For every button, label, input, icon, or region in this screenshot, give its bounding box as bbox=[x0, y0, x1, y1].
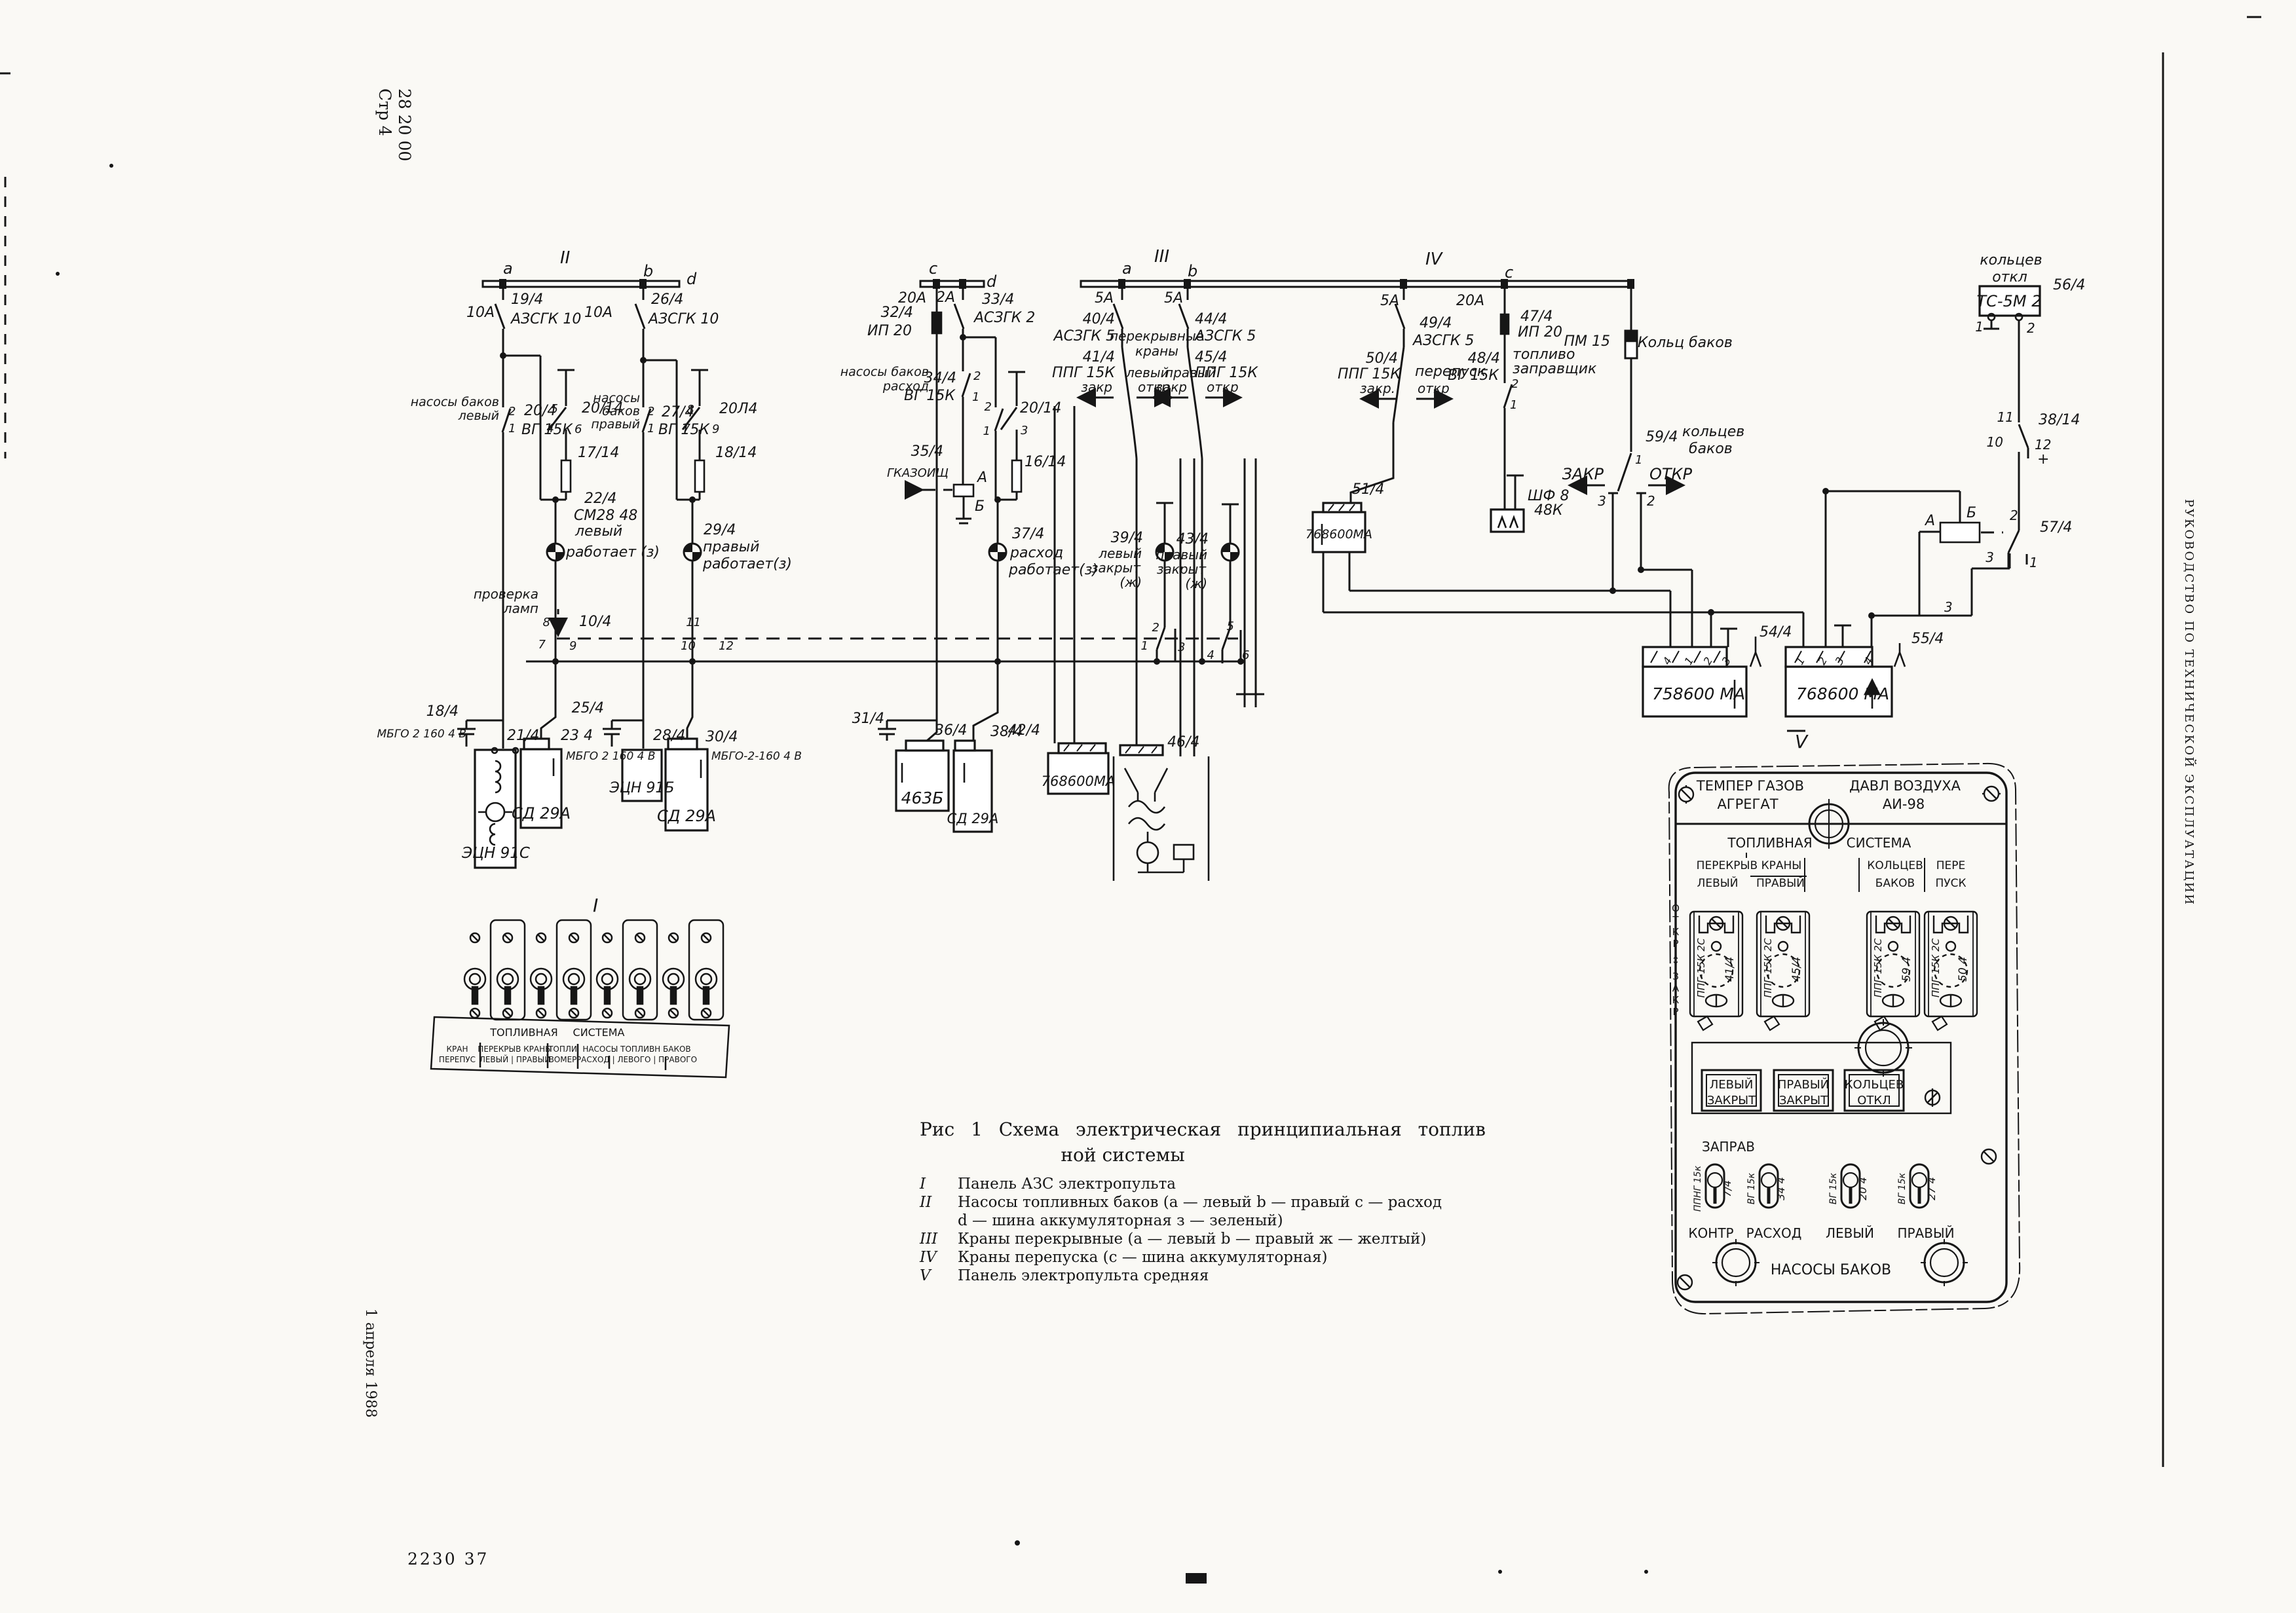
fuse-ip20-32-4 bbox=[932, 312, 941, 333]
resistor-17-14 bbox=[561, 460, 571, 492]
schematic-label: (ж) bbox=[1120, 574, 1142, 590]
schematic-label: IV bbox=[1425, 250, 1444, 269]
schematic-label: 1 bbox=[1510, 398, 1517, 412]
schematic-label: 10 bbox=[1987, 434, 2003, 450]
schematic-label: 54/4 bbox=[1760, 624, 1792, 640]
schematic-label: ТОПЛИВНАЯ bbox=[489, 1026, 557, 1039]
schematic-label: ОТКЛ bbox=[1857, 1094, 1891, 1107]
relay-35-4 bbox=[954, 485, 973, 496]
schematic-label: 4 bbox=[547, 422, 554, 436]
schematic-label: 5 bbox=[1227, 620, 1234, 633]
schematic-label: 10А bbox=[466, 305, 495, 321]
schematic-label: 38/14 bbox=[2039, 412, 2080, 428]
power-buses bbox=[483, 281, 1633, 287]
schematic-label: 7 bbox=[683, 422, 691, 436]
schematic-label: 50/4 bbox=[1366, 350, 1398, 367]
schematic-label: левый bbox=[574, 523, 622, 540]
schematic-label: 48/4 bbox=[1468, 350, 1500, 367]
schematic-label: ТС-5М 2 bbox=[1977, 292, 2042, 310]
schematic-label: левый bbox=[1098, 546, 1142, 561]
schematic-label: закр. bbox=[1360, 380, 1395, 396]
schematic-label: 10А bbox=[584, 305, 612, 321]
schematic-label: насосы bbox=[593, 391, 640, 405]
schematic-label: + bbox=[2037, 451, 2049, 468]
schematic-label: 20Л4 bbox=[719, 401, 758, 417]
schematic-label: 2 bbox=[973, 369, 981, 383]
schematic-label: 2 bbox=[2027, 320, 2035, 336]
schematic-label: ППГ 15К 2С bbox=[1872, 938, 1884, 997]
schematic-label: 27 4 bbox=[1925, 1177, 1938, 1200]
schematic-label: закрыт bbox=[1091, 560, 1141, 576]
schematic-label: проверка bbox=[474, 586, 538, 602]
schematic-label: МБГО-2-160 4 В bbox=[711, 750, 802, 763]
schematic-label: МБГО 2 160 4 В bbox=[566, 750, 656, 763]
schematic-label: ТОПЛИ bbox=[548, 1045, 577, 1054]
schematic-label: ППНГ 15к bbox=[1693, 1165, 1703, 1212]
schematic-label: 17/14 bbox=[578, 445, 619, 461]
schematic-label: насосы баков bbox=[840, 365, 929, 379]
schematic-label: ВГ 15к bbox=[1897, 1172, 1908, 1204]
schematic-label: ПМ 15 bbox=[1564, 333, 1610, 350]
schematic-label: закр bbox=[1081, 379, 1112, 395]
relay-57-4 bbox=[1940, 523, 1980, 542]
schematic-label: насосы баков bbox=[411, 395, 499, 409]
schematic-label: А bbox=[1924, 513, 1935, 529]
schematic-label: 33/4 bbox=[982, 291, 1014, 308]
schematic-label: СД 29А bbox=[657, 807, 716, 825]
schematic-label: ДАВЛ ВОЗДУХА bbox=[1849, 778, 1961, 794]
schematic-label: ПЕРЕКРЫВ КРАНЫ bbox=[478, 1045, 552, 1054]
schematic-label: 43/4 bbox=[1176, 531, 1209, 547]
schematic-label: АГРЕГАТ bbox=[1717, 796, 1778, 812]
schematic-label: 1 bbox=[983, 424, 990, 438]
schematic-label: 2 bbox=[1152, 621, 1159, 635]
schematic-labels: IIabd10А19/4АЗСГК 10насосы баковлевый220… bbox=[377, 247, 2085, 1278]
schematic-label: КОЛЬЦЕВ bbox=[1867, 859, 1923, 872]
schematic-label: перекрывные bbox=[1110, 328, 1204, 344]
schematic-label: 20/14 bbox=[1020, 400, 1061, 417]
schematic-label: ПЕРЕ bbox=[1936, 859, 1966, 872]
schematic-label: 44/4 bbox=[1195, 311, 1227, 327]
schematic-label: РАСХОД bbox=[1746, 1225, 1802, 1241]
box-shf8-48k bbox=[1491, 510, 1524, 532]
schematic-label: НАСОСЫ БАКОВ bbox=[1771, 1262, 1891, 1278]
schematic-label: ПУСК bbox=[1935, 877, 1966, 890]
schematic-label: ПРАВЫЙ bbox=[1897, 1225, 1954, 1241]
schematic-label: 1 bbox=[647, 422, 654, 436]
schematic-label: ППГ 15К 2С bbox=[1930, 938, 1942, 997]
schematic-label: АЗСГК 5 bbox=[1194, 328, 1256, 344]
schematic-label: 5 bbox=[551, 402, 558, 416]
schematic-label: ППГ-15К 2С bbox=[1762, 938, 1774, 997]
schematic-label: 2 bbox=[985, 400, 992, 414]
schematic-label: 59 4 bbox=[1900, 957, 1913, 982]
schematic-label: ВГ 15К bbox=[1448, 367, 1499, 384]
schematic-label: 768600МА bbox=[1042, 773, 1116, 789]
schematic-label: Б bbox=[975, 498, 985, 515]
schematic-label: 20А bbox=[1456, 293, 1484, 309]
schematic-label: 55/4 bbox=[1911, 631, 1944, 647]
schematic-label: ЭЦН 91С bbox=[461, 845, 530, 862]
schematic-label: I bbox=[593, 895, 598, 916]
schematic-label: ЗАКРЫТ bbox=[1779, 1094, 1828, 1107]
components bbox=[561, 312, 1980, 542]
schematic-label: V bbox=[1795, 731, 1809, 752]
schematic-label: баков bbox=[602, 404, 640, 418]
schematic-label: левый bbox=[458, 409, 499, 423]
fuse-ip20-47-4 bbox=[1501, 314, 1509, 334]
schematic-label: 3 bbox=[1985, 549, 1994, 565]
schematic-label: работает(з) bbox=[1008, 562, 1098, 578]
schematic-label: АСЗГК 2 bbox=[973, 310, 1035, 326]
schematic-label: d bbox=[687, 270, 697, 288]
schematic-label: А bbox=[976, 470, 987, 486]
schematic-label: 1 bbox=[2029, 555, 2038, 570]
schematic-label: ТЕМПЕР ГАЗОВ bbox=[1696, 778, 1804, 794]
schematic-label: 5А bbox=[1164, 290, 1183, 306]
schematic-label: 30/4 bbox=[706, 729, 738, 745]
schematic-label: ВГ 15к bbox=[1828, 1172, 1839, 1204]
schematic-label: правый bbox=[591, 417, 640, 432]
box-details bbox=[478, 314, 2022, 881]
schematic-label: 10/4 bbox=[579, 614, 611, 630]
schematic-label: ЗАКРЫТ bbox=[1707, 1094, 1756, 1107]
schematic-label: АЗСГК 10 bbox=[647, 311, 719, 327]
schematic-label: 23 4 bbox=[561, 728, 593, 744]
schematic-label: 8 bbox=[543, 616, 550, 629]
schematic-label: работает (з) bbox=[565, 544, 660, 561]
schematic-label: 1 bbox=[1635, 453, 1642, 467]
schematic-label: 18/14 bbox=[715, 445, 757, 461]
lamp-22-4 bbox=[547, 544, 564, 561]
connector-strip bbox=[955, 741, 975, 751]
module-tags bbox=[1698, 1016, 1947, 1030]
schematic-label: ОТКР bbox=[1672, 902, 1680, 950]
schematic-label: 32/4 bbox=[881, 305, 913, 321]
schematic-label: III bbox=[1154, 247, 1169, 267]
schematic-label: ЛЕВЫЙ bbox=[1697, 876, 1739, 890]
schematic-label: 25/4 bbox=[572, 700, 604, 716]
fuel-system-schematic: IIabd10А19/4АЗСГК 10насосы баковлевый220… bbox=[0, 0, 2296, 1613]
schematic-label: ЗАКР bbox=[1672, 971, 1680, 1018]
schematic-label: 1 bbox=[972, 390, 979, 404]
schematic-label: 36/4 bbox=[935, 722, 967, 739]
schematic-label: ЗАКР bbox=[1562, 465, 1604, 483]
schematic-label: 1 bbox=[508, 422, 516, 436]
schematic-label: 3 bbox=[1944, 599, 1953, 615]
schematic-label: 463Б bbox=[901, 788, 944, 807]
document-page: 28 20 00 Стр 4 РУКОВОДСТВО ПО ТЕХНИЧЕСКО… bbox=[0, 0, 2296, 1613]
schematic-label: a bbox=[1122, 259, 1132, 278]
schematic-label: РАСХОД | ЛЕВОГО | ПРАВОГО bbox=[576, 1055, 697, 1064]
schematic-label: 6 bbox=[1242, 648, 1249, 662]
schematic-label: 34/4 bbox=[924, 370, 956, 386]
schematic-label: закрыт bbox=[1157, 561, 1207, 577]
schematic-label: МБГО 2 160 4 В bbox=[377, 728, 466, 741]
schematic-label: 45/4 bbox=[1790, 957, 1803, 982]
schematic-label: 12 bbox=[2035, 437, 2051, 453]
schematic-label: Кольц баков bbox=[1638, 335, 1733, 351]
schematic-label: ВГ 15к bbox=[1746, 1172, 1757, 1204]
lamp-29-4 bbox=[684, 544, 701, 561]
schematic-label: НАСОСЫ ТОПЛИВН БАКОВ bbox=[582, 1045, 690, 1054]
schematic-label: 34 4 bbox=[1775, 1177, 1787, 1200]
schematic-label: 11 bbox=[686, 616, 701, 629]
schematic-label: ↕ bbox=[1671, 954, 1680, 967]
schematic-label: ЛЕВЫЙ bbox=[1826, 1225, 1874, 1241]
connector-strip bbox=[906, 741, 943, 751]
schematic-label: 5А bbox=[1095, 290, 1114, 306]
schematic-label: заправщик bbox=[1513, 361, 1597, 377]
schematic-label: 41/4 bbox=[1723, 957, 1737, 982]
schematic-label: 19/4 bbox=[511, 291, 543, 308]
schematic-label: БАКОВ bbox=[1875, 877, 1915, 890]
schematic-label: 8 bbox=[687, 403, 694, 417]
lamp-37-4 bbox=[989, 544, 1006, 561]
schematic-label: 20 4 bbox=[1856, 1177, 1869, 1200]
schematic-label: 59/4 bbox=[1646, 429, 1678, 445]
schematic-label: КРАН bbox=[447, 1045, 468, 1054]
schematic-label: ИП 20 bbox=[1518, 324, 1562, 341]
schematic-label: 48К bbox=[1534, 502, 1564, 519]
schematic-label: 37/4 bbox=[1012, 526, 1044, 542]
schematic-label: 40/4 bbox=[1083, 311, 1115, 327]
schematic-label: СД 29А bbox=[947, 811, 999, 826]
schematic-label: 28/4 bbox=[653, 728, 685, 744]
schematic-label: ИП 20 bbox=[867, 323, 912, 339]
schematic-label: ламп bbox=[503, 601, 538, 616]
schematic-label: 4 bbox=[1207, 648, 1214, 662]
schematic-label: b bbox=[1188, 262, 1197, 280]
schematic-label: откр bbox=[1418, 380, 1450, 396]
schematic-label: d bbox=[987, 272, 997, 291]
schematic-label: 47/4 bbox=[1520, 308, 1553, 325]
schematic-label: 2 bbox=[508, 405, 516, 418]
schematic-label: ТОПЛИВНАЯ bbox=[1727, 835, 1812, 851]
schematic-label: 2 bbox=[1647, 493, 1655, 509]
schematic-label: c bbox=[929, 259, 937, 278]
schematic-label: правый bbox=[1156, 547, 1207, 563]
schematic-label: 46/4 bbox=[1167, 734, 1199, 751]
schematic-label: ЛЕВЫЙ | ПРАВЫЙ bbox=[480, 1054, 550, 1064]
schematic-label: ВГ 15К bbox=[904, 388, 956, 404]
schematic-label: ПЕРЕКРЫВ КРАНЫ bbox=[1697, 859, 1802, 872]
schematic-label: АСЗГК 5 bbox=[1053, 328, 1115, 344]
schematic-label: 2А bbox=[936, 289, 955, 306]
schematic-label: 56/4 bbox=[2053, 277, 2085, 293]
schematic-label: 6 bbox=[574, 422, 582, 436]
schematic-label: СД 29А bbox=[512, 804, 571, 823]
schematic-label: c bbox=[1505, 263, 1513, 282]
schematic-label: 5А bbox=[1380, 293, 1399, 309]
schematic-label: краны bbox=[1135, 343, 1178, 359]
schematic-label: a bbox=[503, 259, 513, 278]
schematic-label: 41/4 bbox=[1083, 349, 1115, 365]
schematic-label: 12 bbox=[719, 639, 734, 653]
schematic-label: левый bbox=[1125, 365, 1169, 380]
schematic-label: 39/4 bbox=[1111, 530, 1143, 546]
schematic-label: расход bbox=[1009, 545, 1063, 561]
schematic-label: 3 bbox=[1178, 640, 1185, 654]
schematic-label: откр bbox=[1207, 379, 1239, 395]
panel-azs bbox=[431, 920, 729, 1077]
schematic-label: 7 bbox=[538, 638, 546, 652]
schematic-label: СМ28 48 bbox=[574, 508, 637, 524]
schematic-label: КОЛЬЦЕВ bbox=[1845, 1078, 1904, 1092]
resistor-18-14 bbox=[695, 460, 704, 492]
resistor-16-14 bbox=[1012, 460, 1021, 492]
refuel-toggle-switches[interactable] bbox=[1706, 1164, 1929, 1208]
schematic-label: ПРАВЫЙ bbox=[1778, 1077, 1829, 1092]
schematic-label: закр bbox=[1156, 379, 1187, 395]
schematic-label: 768600 МА bbox=[1796, 684, 1889, 703]
schematic-label: кольцев bbox=[1682, 424, 1744, 440]
schematic-label: АЗСГК 5 bbox=[1412, 333, 1474, 349]
schematic-label: ЭЦН 91Б bbox=[609, 780, 674, 796]
lamp-43-4 bbox=[1222, 544, 1239, 561]
schematic-label: 42/4 bbox=[1008, 722, 1040, 739]
junction-dots bbox=[500, 334, 1875, 665]
schematic-label: 1 bbox=[1975, 319, 1984, 335]
schematic-label: АИ-98 bbox=[1883, 796, 1925, 812]
schematic-label: 26/4 bbox=[651, 291, 683, 308]
schematic-label: откл bbox=[1992, 269, 2027, 286]
schematic-label: работает(з) bbox=[702, 556, 792, 572]
schematic-label: 29/4 bbox=[704, 522, 736, 538]
schematic-label: ППГ-15К 2С bbox=[1695, 938, 1707, 997]
schematic-label: b bbox=[643, 262, 653, 280]
schematic-label: 11 bbox=[1997, 409, 2014, 425]
schematic-label: II bbox=[560, 248, 570, 268]
schematic-label: 22/4 bbox=[584, 491, 616, 507]
schematic-label: 31/4 bbox=[852, 711, 884, 727]
schematic-label: 9 bbox=[569, 639, 576, 653]
schematic-label: 2 bbox=[1511, 377, 1518, 391]
schematic-label: 768600МА bbox=[1306, 527, 1372, 542]
schematic-label: ЗАПРАВ bbox=[1702, 1139, 1755, 1155]
schematic-label: 35/4 bbox=[911, 443, 943, 460]
schematic-label: правый bbox=[703, 539, 759, 555]
schematic-label: 10 bbox=[681, 639, 696, 653]
fuse-pm15 bbox=[1625, 331, 1637, 358]
schematic-label: 45/4 bbox=[1195, 349, 1227, 365]
schematic-label: ПЕРЕПУС bbox=[439, 1055, 476, 1064]
schematic-label: (ж) bbox=[1185, 576, 1207, 591]
schematic-label: СИСТЕМА bbox=[573, 1026, 625, 1039]
schematic-label: кольцев bbox=[1980, 252, 2042, 269]
schematic-label: ВОМЕР bbox=[549, 1055, 577, 1064]
schematic-label: ПРАВЫЙ bbox=[1756, 876, 1805, 890]
schematic-label: 9 bbox=[712, 422, 719, 436]
schematic-label: ОТКР bbox=[1649, 465, 1693, 483]
schematic-label: баков bbox=[1689, 441, 1733, 457]
schematic-label: 7/4 bbox=[1721, 1180, 1733, 1197]
page-rules bbox=[0, 17, 2261, 1467]
schematic-label: КОНТР bbox=[1688, 1225, 1733, 1241]
schematic-label: 3 bbox=[1598, 493, 1606, 509]
schematic-label: 16/14 bbox=[1025, 454, 1066, 470]
schematic-label: Б bbox=[1967, 505, 1976, 521]
schematic-label: 49/4 bbox=[1420, 315, 1452, 331]
schematic-label: 57/4 bbox=[2040, 519, 2072, 536]
schematic-label: 50 4 bbox=[1957, 957, 1970, 982]
schematic-label: СИСТЕМА bbox=[1847, 835, 1911, 851]
schematic-label: ЛЕВЫЙ bbox=[1710, 1077, 1754, 1092]
schematic-label: 1 bbox=[1141, 639, 1148, 653]
schematic-label: 2 bbox=[647, 405, 654, 418]
schematic-label: 18/4 bbox=[426, 703, 459, 720]
schematic-label: 2 bbox=[2010, 508, 2018, 523]
schematic-label: 3 bbox=[1021, 424, 1028, 437]
schematic-label: 758600 МА bbox=[1652, 684, 1745, 703]
schematic-label: ГКАЗОИЩ bbox=[887, 466, 949, 480]
schematic-label: 51/4 bbox=[1352, 481, 1384, 498]
schematic-label: 21/4 bbox=[507, 728, 539, 744]
schematic-label: АЗСГК 10 bbox=[510, 311, 581, 327]
